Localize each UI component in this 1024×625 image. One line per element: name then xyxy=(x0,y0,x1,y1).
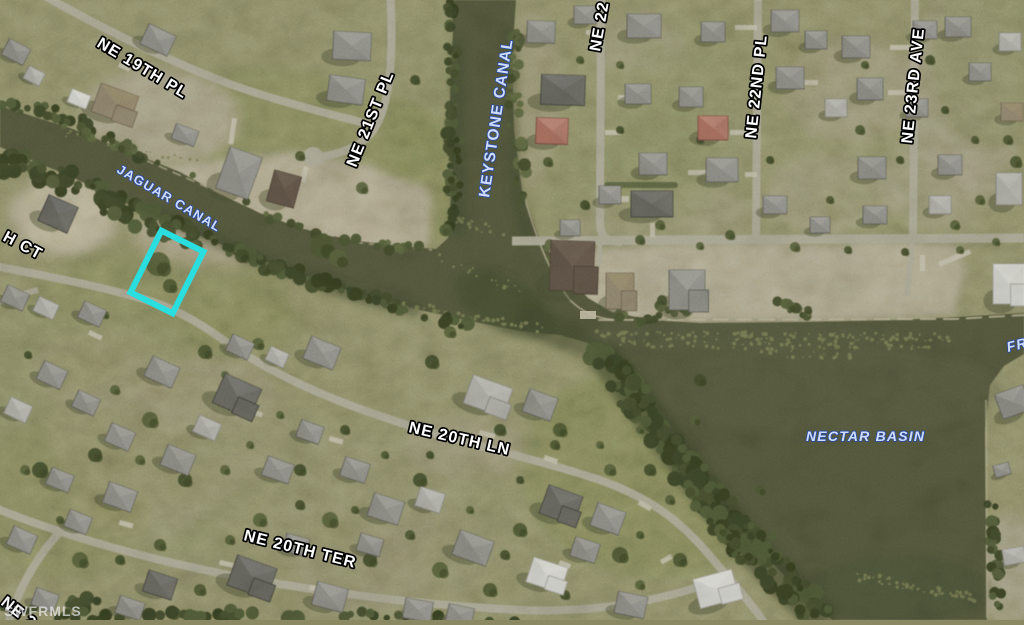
svg-text:SWFRMLS: SWFRMLS xyxy=(4,603,82,619)
